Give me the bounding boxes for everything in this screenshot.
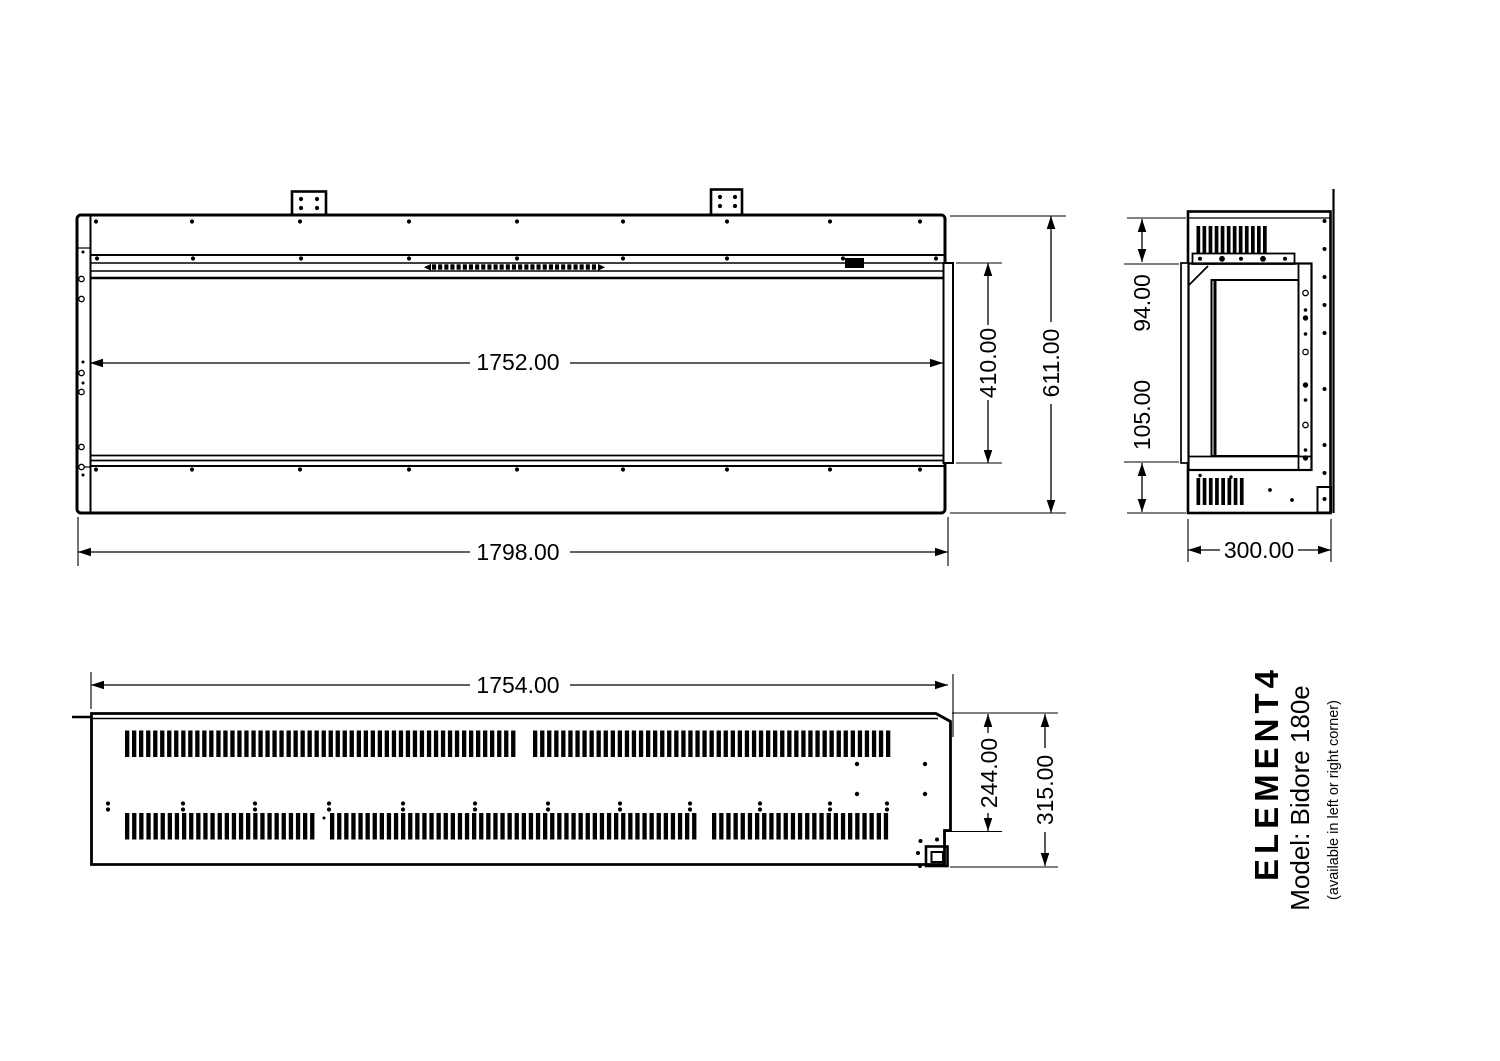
screw-dot	[841, 256, 845, 260]
screw-dot	[94, 219, 98, 223]
vent-slat	[862, 813, 866, 840]
vent-slat	[632, 731, 636, 758]
screw-dot	[82, 382, 85, 385]
burner-dash	[561, 264, 565, 269]
burner-dash	[444, 264, 448, 269]
vent-slat	[230, 731, 234, 758]
burner-dash	[481, 264, 485, 269]
vent-slat	[667, 731, 671, 758]
screw-dot	[407, 219, 411, 223]
dimension-arrowhead	[91, 681, 104, 690]
vent-slat	[500, 813, 504, 840]
screw-dot	[1323, 443, 1327, 447]
screw-dot	[855, 762, 859, 766]
vent-slat	[146, 731, 150, 758]
vent-slat	[401, 813, 405, 840]
vent-slat	[1263, 226, 1267, 254]
vent-slat	[823, 731, 827, 758]
screw-dot	[621, 256, 625, 260]
dim-plan-width: 1754.00	[476, 672, 559, 698]
vent-slat	[465, 813, 469, 840]
screw-dot	[190, 467, 194, 471]
vent-slat	[344, 813, 348, 840]
vent-slat	[472, 813, 476, 840]
dim-front-outer-height: 611.00	[1038, 329, 1064, 398]
vent-slat	[441, 731, 445, 758]
vent-slat	[296, 813, 300, 840]
bracket-hole	[315, 206, 319, 210]
screw-dot	[1290, 498, 1294, 502]
vent-slat	[695, 731, 699, 758]
screw-dot	[1304, 448, 1308, 452]
vent-slat	[830, 731, 834, 758]
screw-dot	[934, 256, 938, 260]
vent-slat	[181, 731, 185, 758]
screw-dot	[916, 851, 920, 855]
dim-front-inner-width: 1752.00	[476, 349, 559, 375]
burner-dash	[524, 264, 528, 269]
vent-slat	[139, 813, 143, 840]
vent-slat	[841, 813, 845, 840]
vent-slat	[692, 813, 696, 840]
vent-slat	[642, 813, 646, 840]
vent-slat	[621, 813, 625, 840]
mounting-hole	[79, 444, 84, 449]
vent-slat	[385, 731, 389, 758]
vent-slat	[798, 813, 802, 840]
vent-slat	[387, 813, 391, 840]
vent-slat	[780, 731, 784, 758]
model-name: Model: Bidore 180e	[1285, 685, 1315, 910]
vent-slat	[265, 731, 269, 758]
vent-row-1	[533, 731, 890, 758]
vent-slat	[504, 731, 508, 758]
screw-dot	[1219, 256, 1225, 262]
hinge-dot	[327, 801, 331, 805]
vent-slat	[146, 813, 150, 840]
screw-dot	[323, 817, 326, 820]
burner-dash	[580, 264, 584, 269]
vent-slat	[301, 731, 305, 758]
vent-slat	[371, 731, 375, 758]
vent-slat	[253, 813, 257, 840]
vent-slat	[773, 731, 777, 758]
screw-dot	[1303, 315, 1308, 320]
screw-dot	[725, 256, 729, 260]
vent-slat	[1209, 226, 1213, 254]
vent-slat	[373, 813, 377, 840]
vent-slat	[625, 731, 629, 758]
vent-slat	[1215, 226, 1219, 254]
vent-slat	[593, 813, 597, 840]
vent-slat	[1228, 478, 1232, 505]
vent-slat	[444, 813, 448, 840]
screw-dot	[1304, 308, 1308, 312]
vent-slat	[486, 813, 490, 840]
vent-slat	[161, 813, 165, 840]
vent-slat	[1221, 478, 1225, 505]
screw-dot	[95, 256, 99, 260]
vent-slat	[678, 813, 682, 840]
glass-frame-edge	[944, 263, 954, 463]
vent-slat	[267, 813, 271, 840]
screw-dot	[1323, 387, 1327, 391]
vent-slat	[1227, 226, 1231, 254]
dimension-arrowhead	[984, 263, 993, 276]
screw-dot	[82, 474, 85, 477]
burner-dash	[463, 264, 467, 269]
bracket-hole	[733, 204, 737, 208]
hinge-dot	[885, 801, 889, 805]
mounting-hole	[1303, 422, 1308, 427]
vent-slat	[543, 813, 547, 840]
vent-slat	[329, 731, 333, 758]
plan-view	[72, 714, 951, 869]
vent-slat	[834, 813, 838, 840]
vent-slat	[766, 731, 770, 758]
vent-slat	[132, 813, 136, 840]
burner-dash	[543, 264, 547, 269]
vent-slat	[1239, 226, 1243, 254]
screw-dot	[1323, 303, 1327, 307]
dim-plan-outer-depth: 315.00	[1032, 755, 1058, 825]
screw-dot	[1323, 331, 1327, 335]
vent-slat	[734, 813, 738, 840]
vent-slat	[557, 813, 561, 840]
vent-slat	[448, 731, 452, 758]
vent-slat	[167, 731, 171, 758]
vent-slat	[646, 731, 650, 758]
vent-slat	[855, 813, 859, 840]
screw-dot	[1198, 257, 1202, 261]
vent-slat	[571, 813, 575, 840]
screw-dot	[1229, 475, 1232, 478]
hinge-dot	[618, 801, 622, 805]
burner-dash	[432, 264, 436, 269]
screw-dot	[190, 219, 194, 223]
screw-dot	[1303, 382, 1308, 387]
vent-slat	[322, 731, 326, 758]
screw-dot	[855, 792, 859, 796]
screw-dot	[1303, 455, 1308, 460]
bracket-hole	[718, 195, 722, 199]
dimension-arrowhead	[1047, 500, 1056, 513]
screw-dot	[407, 467, 411, 471]
vent-slat	[870, 813, 874, 840]
vent-slat	[741, 813, 745, 840]
vent-slat	[657, 813, 661, 840]
hinge-dot	[758, 801, 762, 805]
vent-slat	[597, 731, 601, 758]
vent-slat	[660, 731, 664, 758]
vent-slat	[827, 813, 831, 840]
vent-slat	[294, 731, 298, 758]
vent-slat	[848, 813, 852, 840]
vent-slat	[561, 731, 565, 758]
hinge-dot	[473, 801, 477, 805]
vent-slat	[586, 813, 590, 840]
vent-slat	[216, 731, 220, 758]
vent-slat	[759, 731, 763, 758]
vent-slat	[458, 813, 462, 840]
vent-slat	[427, 731, 431, 758]
mounting-hole	[79, 464, 84, 469]
vent-slat	[529, 813, 533, 840]
vent-slat	[515, 813, 519, 840]
vent-slat	[664, 813, 668, 840]
screw-dot	[1239, 257, 1243, 261]
vent-slat	[731, 731, 735, 758]
vent-slat	[455, 731, 459, 758]
vent-slat	[437, 813, 441, 840]
vent-slat	[819, 813, 823, 840]
screw-dot	[1323, 275, 1327, 279]
vent-slat	[483, 731, 487, 758]
screw-dot	[1323, 497, 1327, 501]
hinge-dot	[181, 807, 185, 811]
burner-dash	[592, 264, 596, 269]
screw-dot	[1198, 474, 1201, 477]
screw-dot	[621, 467, 625, 471]
vent-slat	[688, 731, 692, 758]
technical-drawing: 1752.00 1798.00 410.00 611.00	[0, 0, 1500, 1061]
vent-slat	[879, 731, 883, 758]
vent-slat	[776, 813, 780, 840]
vent-slat	[536, 813, 540, 840]
vent-slat	[628, 813, 632, 840]
screw-dot	[919, 839, 923, 843]
burner-dash	[438, 264, 442, 269]
hinge-dot	[327, 807, 331, 811]
hinge-dot	[618, 807, 622, 811]
screw-dot	[1323, 219, 1327, 223]
vent-slat	[160, 731, 164, 758]
vent-slat	[719, 813, 723, 840]
burner-dash	[506, 264, 510, 269]
vent-slat	[451, 813, 455, 840]
vent-slat	[579, 813, 583, 840]
bracket-hole	[299, 206, 303, 210]
screw-dot	[621, 219, 625, 223]
burner-dash	[555, 264, 559, 269]
screw-dot	[94, 467, 98, 471]
dimension-arrowhead	[1041, 714, 1050, 727]
vent-slat	[724, 731, 728, 758]
vent-slat	[748, 813, 752, 840]
vent-slat	[508, 813, 512, 840]
burner-dash	[487, 264, 491, 269]
vent-slat	[550, 813, 554, 840]
hinge-dot	[688, 807, 692, 811]
hinge-dot	[546, 807, 550, 811]
vent-slat	[202, 731, 206, 758]
hinge-dot	[473, 807, 477, 811]
screw-dot	[515, 256, 519, 260]
vent-slat	[564, 813, 568, 840]
dimension-arrowhead	[1047, 216, 1056, 229]
vent-slat	[195, 731, 199, 758]
vent-slat	[1245, 226, 1249, 254]
hinge-dot	[758, 807, 762, 811]
screw-dot	[191, 256, 195, 260]
burner-dash	[457, 264, 461, 269]
vent-slat	[1203, 226, 1207, 254]
mounting-hole	[1303, 349, 1308, 354]
vent-slat	[604, 731, 608, 758]
screw-dot	[923, 792, 927, 796]
control-module	[845, 258, 864, 268]
bracket-hole	[733, 195, 737, 199]
vent-slat	[209, 731, 213, 758]
screw-dot	[515, 467, 519, 471]
vent-slat	[336, 731, 340, 758]
hinge-dot	[885, 807, 889, 811]
vent-slat	[674, 731, 678, 758]
mounting-hole	[79, 276, 84, 281]
vent-slat	[865, 731, 869, 758]
vent-slat	[279, 731, 283, 758]
dimension-arrowhead	[935, 548, 948, 557]
screw-dot	[1323, 247, 1327, 251]
glass-frame-edge	[1181, 263, 1189, 463]
burner-dash	[450, 264, 454, 269]
vent-slat	[287, 731, 291, 758]
vent-slat	[490, 731, 494, 758]
mounting-hole	[79, 296, 84, 301]
hinge-dot	[401, 807, 405, 811]
burner-dash	[567, 264, 571, 269]
vent-slat	[244, 731, 248, 758]
burner-dash	[549, 264, 553, 269]
dimension-arrowhead	[1188, 546, 1201, 555]
hinge-dot	[253, 807, 257, 811]
bracket-hole	[718, 204, 722, 208]
vent-slat	[712, 813, 716, 840]
vent-slat	[429, 813, 433, 840]
hinge-dot	[106, 807, 110, 811]
vent-slat	[805, 813, 809, 840]
vent-slat	[139, 731, 143, 758]
title-block: ELEMENT4 Model: Bidore 180e (available i…	[1248, 665, 1342, 911]
burner-dash	[469, 264, 473, 269]
vent-slat	[258, 731, 262, 758]
vent-slat	[540, 731, 544, 758]
vent-slat	[726, 813, 730, 840]
burner-dash	[530, 264, 534, 269]
bracket-hole	[315, 197, 319, 201]
vent-slat	[434, 731, 438, 758]
dimension-arrowhead	[984, 714, 993, 727]
vent-slat	[174, 731, 178, 758]
vent-slat	[752, 731, 756, 758]
hinge-dot	[688, 801, 692, 805]
burner-dash	[475, 264, 479, 269]
vent-slat	[175, 813, 179, 840]
vent-slat	[289, 813, 293, 840]
hinge-dot	[181, 801, 185, 805]
burner-dash	[574, 264, 578, 269]
screw-dot	[299, 256, 303, 260]
dim-front-outer-width: 1798.00	[476, 539, 559, 565]
vent-slat	[343, 731, 347, 758]
vent-slat	[547, 731, 551, 758]
vent-slat	[812, 813, 816, 840]
vent-slat	[399, 731, 403, 758]
burner-dash	[494, 264, 498, 269]
burner-dash	[586, 264, 590, 269]
vent-slat	[476, 731, 480, 758]
vent-slat	[378, 731, 382, 758]
burner-dash	[512, 264, 516, 269]
vent-slat	[275, 813, 279, 840]
vent-slat	[533, 731, 537, 758]
screw-dot	[1304, 398, 1308, 402]
vent-slat	[154, 813, 158, 840]
mounting-bracket	[711, 190, 742, 216]
vent-slat	[794, 731, 798, 758]
vent-slat	[350, 731, 354, 758]
hinge-dot	[253, 801, 257, 805]
vent-slat	[653, 731, 657, 758]
vent-slat	[351, 813, 355, 840]
mounting-brackets	[292, 190, 742, 216]
vent-slat	[239, 813, 243, 840]
drawing-sheet: 1752.00 1798.00 410.00 611.00	[0, 0, 1500, 1061]
screw-dot	[1323, 471, 1327, 475]
vent-slat	[272, 731, 276, 758]
vent-slat	[182, 813, 186, 840]
vent-slat	[717, 731, 721, 758]
vent-slat	[408, 813, 412, 840]
side-view	[1181, 189, 1334, 513]
vent-slat	[232, 813, 236, 840]
vent-slat	[1197, 478, 1201, 505]
vent-slat	[394, 813, 398, 840]
vent-slat	[815, 731, 819, 758]
vent-slat	[125, 813, 129, 840]
screw-dot	[828, 467, 832, 471]
vent-slat	[618, 731, 622, 758]
vent-slat	[479, 813, 483, 840]
screw-dot	[828, 219, 832, 223]
vent-slat	[497, 731, 501, 758]
vent-slat	[685, 813, 689, 840]
hinge-dot	[106, 801, 110, 805]
vent-slat	[218, 813, 222, 840]
screw-dot	[298, 467, 302, 471]
screw-dot	[515, 219, 519, 223]
vent-slat	[260, 813, 264, 840]
hinge-dot	[546, 801, 550, 805]
vent-slat	[251, 731, 255, 758]
screw-dot	[725, 467, 729, 471]
vent-slat	[575, 731, 579, 758]
vent-slat	[858, 731, 862, 758]
mounting-bracket	[292, 192, 326, 216]
vent-slat	[582, 731, 586, 758]
vent-slat	[590, 731, 594, 758]
dim-side-bottom-inset: 105.00	[1129, 380, 1155, 450]
vent-slat	[188, 731, 192, 758]
mounting-hole	[79, 370, 84, 375]
vent-slat	[522, 813, 526, 840]
vent-slat	[422, 813, 426, 840]
vent-slat	[406, 731, 410, 758]
vent-slat	[237, 731, 241, 758]
screw-dot	[918, 219, 922, 223]
vent-slat	[282, 813, 286, 840]
vent-slat	[125, 731, 129, 758]
